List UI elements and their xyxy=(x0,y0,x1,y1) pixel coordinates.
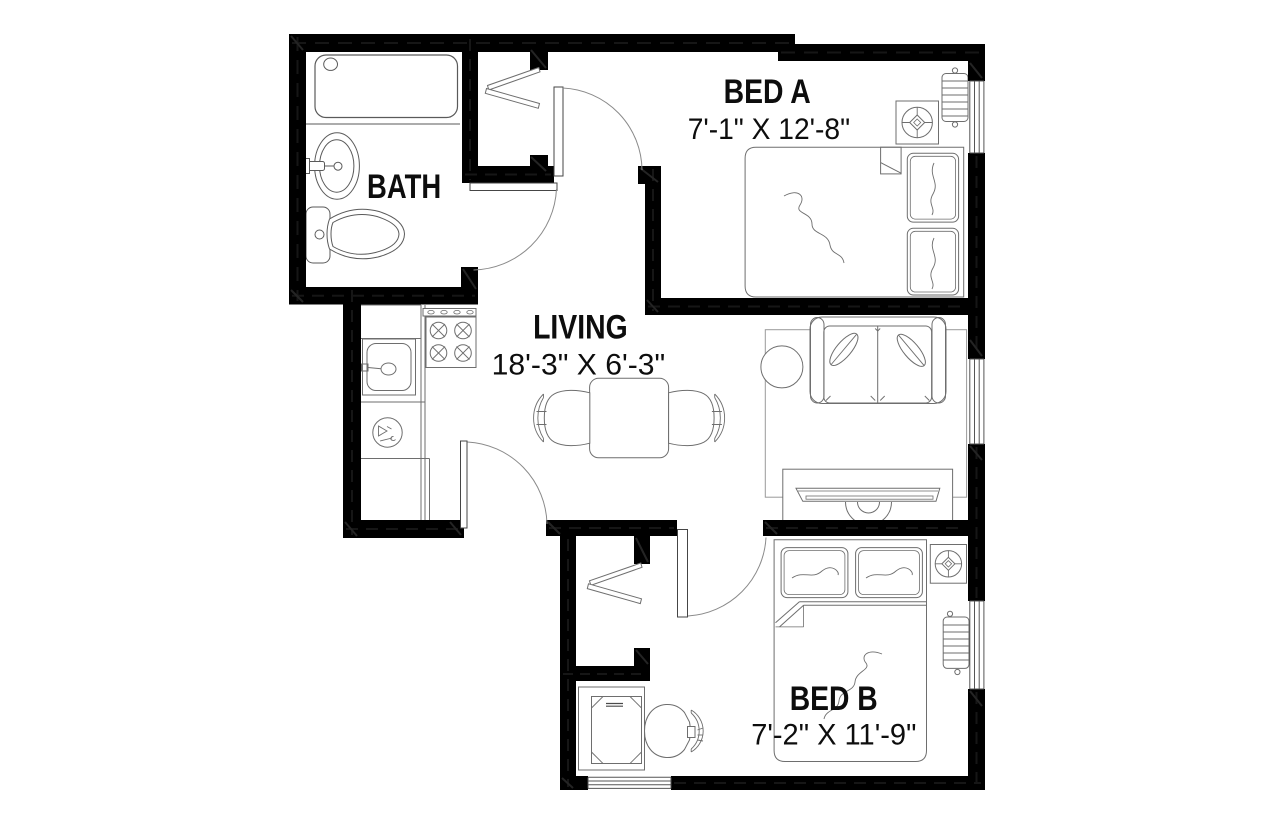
svg-text:18'-3" X 6'-3": 18'-3" X 6'-3" xyxy=(492,348,666,381)
svg-text:BATH: BATH xyxy=(367,168,441,206)
svg-text:LIVING: LIVING xyxy=(533,309,628,347)
svg-text:BED B: BED B xyxy=(790,680,878,718)
svg-text:7'-1" X 12'-8": 7'-1" X 12'-8" xyxy=(688,113,850,146)
svg-text:7'-2" X 11'-9": 7'-2" X 11'-9" xyxy=(751,719,916,752)
svg-text:BED A: BED A xyxy=(724,73,811,111)
